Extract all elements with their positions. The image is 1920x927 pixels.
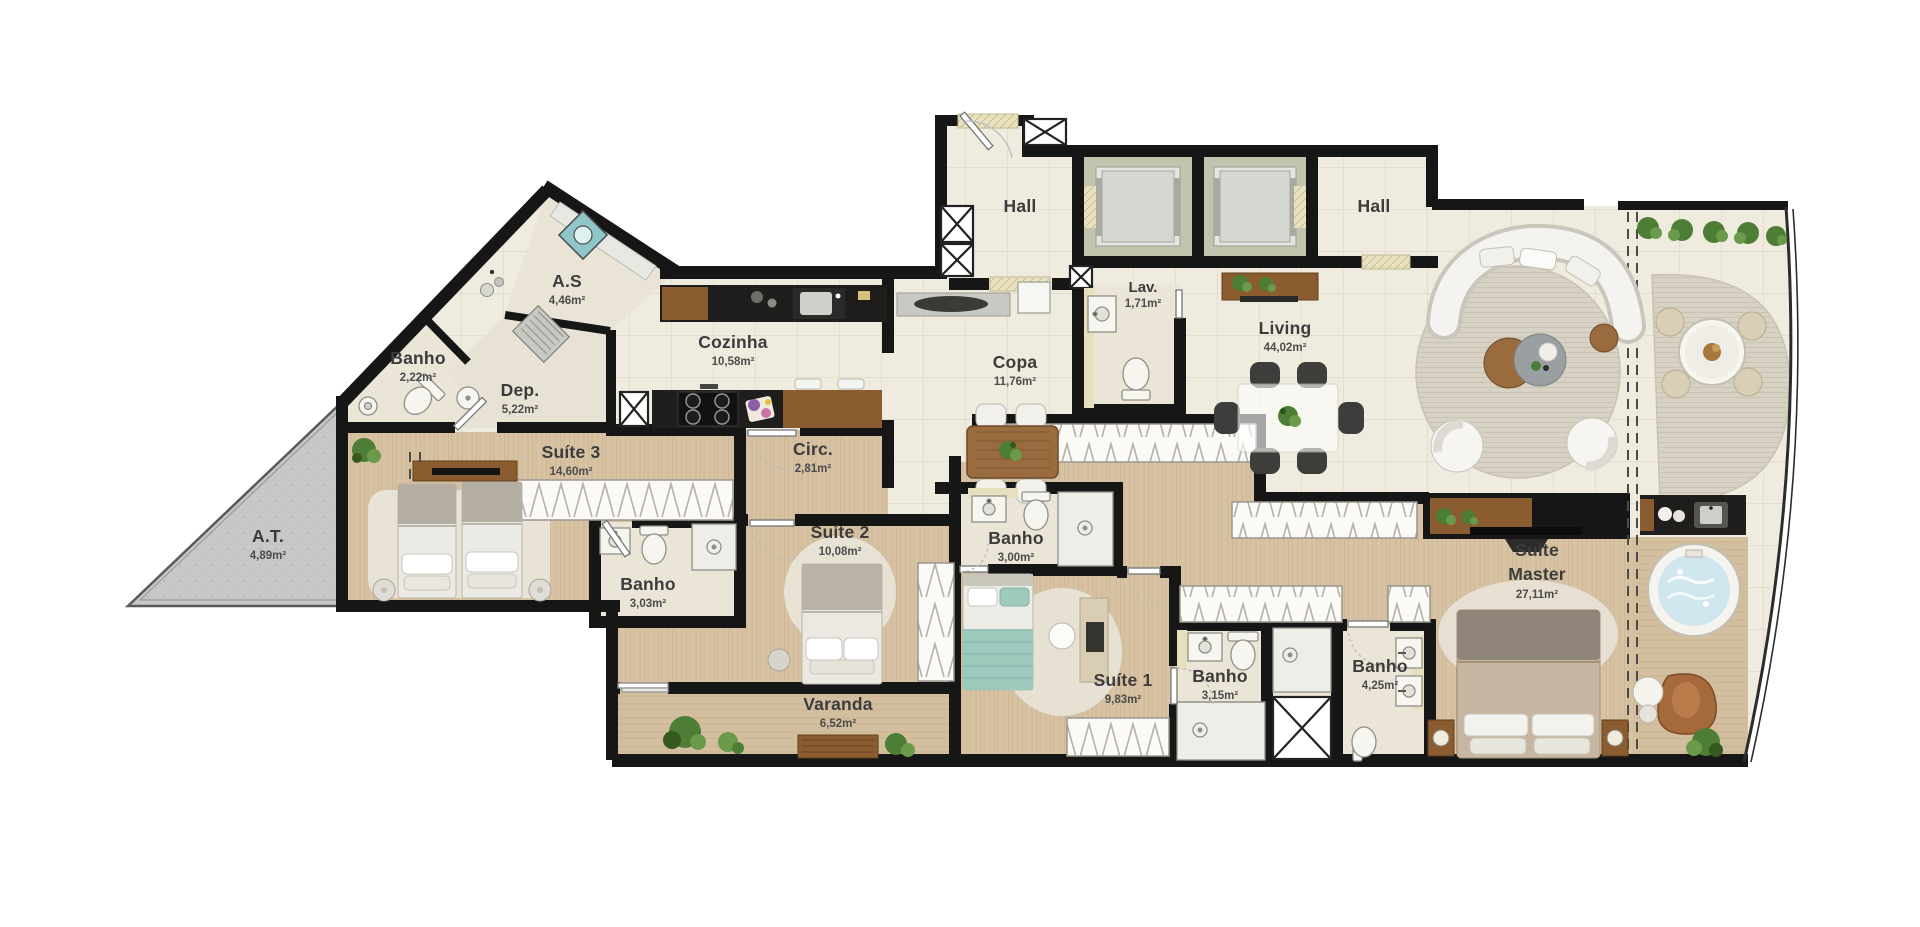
room-area-suite-master: 27,11m² bbox=[1516, 589, 1558, 601]
room-area-suite-2: 10,08m² bbox=[819, 546, 862, 558]
kitchen-cabinet-wood bbox=[662, 287, 708, 320]
floor-plan-drawing: A.T. 4,89m² Banho 2,22m² Dep. 5,22m² A.S… bbox=[0, 0, 1920, 927]
toilet-icon bbox=[1122, 358, 1150, 400]
tank-sink-icon bbox=[481, 284, 494, 297]
room-label-suite-1: Suíte 1 bbox=[1094, 670, 1153, 690]
shaft-box-icon bbox=[1273, 697, 1331, 759]
shaft-box-icon bbox=[941, 206, 973, 242]
armchair-icon bbox=[1431, 420, 1483, 472]
room-area-living: 44,02m² bbox=[1264, 342, 1307, 354]
toilet-icon bbox=[640, 526, 668, 564]
room-label-lav: Lav. bbox=[1129, 279, 1158, 296]
terrace-chair-icon bbox=[1738, 312, 1766, 340]
room-area-banho-suite-2: 3,00m² bbox=[998, 552, 1035, 564]
room-label-suite-3: Suíte 3 bbox=[542, 442, 601, 462]
terrace-counter bbox=[1640, 495, 1746, 535]
room-label-suite-2: Suíte 2 bbox=[811, 522, 870, 542]
tv-icon bbox=[1470, 527, 1582, 535]
copa-buffet-tray-icon bbox=[914, 296, 988, 312]
shower-icon bbox=[1273, 628, 1331, 692]
room-label-cozinha: Cozinha bbox=[698, 332, 768, 352]
room-area-as: 4,46m² bbox=[549, 295, 586, 307]
room-area-dep: 5,22m² bbox=[502, 404, 539, 416]
armchair-icon bbox=[1567, 418, 1617, 468]
kitchen-sink-icon bbox=[800, 292, 832, 315]
floor-plan-canvas: A.T. 4,89m² Banho 2,22m² Dep. 5,22m² A.S… bbox=[0, 0, 1920, 927]
shaft-box-icon bbox=[620, 392, 648, 426]
room-label-suite-master-line2: Master bbox=[1508, 564, 1566, 584]
room-label-hall-right: Hall bbox=[1358, 196, 1391, 216]
room-label-banho-master: Banho bbox=[1352, 656, 1407, 676]
twin-bed-icon bbox=[398, 484, 456, 598]
terrace-chair-icon bbox=[1656, 308, 1684, 336]
room-label-circ: Circ. bbox=[793, 439, 833, 459]
single-bed-icon bbox=[963, 574, 1033, 690]
room-label-banho-suite-1: Banho bbox=[1192, 666, 1247, 686]
room-area-banho-social: 2,22m² bbox=[400, 372, 437, 384]
master-closet-small bbox=[1388, 586, 1430, 622]
room-label-banho-social: Banho bbox=[390, 348, 445, 368]
coffee-table-gray-icon bbox=[1514, 334, 1566, 386]
suite-2-closet bbox=[918, 563, 954, 681]
nightstand-icon bbox=[1602, 720, 1628, 756]
room-label-varanda: Varanda bbox=[803, 694, 873, 714]
elevator-left bbox=[1084, 157, 1192, 256]
side-table-icon bbox=[1590, 324, 1618, 352]
twin-bed-icon bbox=[462, 482, 522, 598]
suite-3-closet bbox=[500, 480, 733, 520]
toilet-icon bbox=[1022, 492, 1050, 530]
room-label-copa: Copa bbox=[993, 352, 1038, 372]
jacuzzi-icon bbox=[1648, 544, 1740, 636]
master-closet-north bbox=[1232, 502, 1417, 538]
elevator-right bbox=[1204, 157, 1306, 256]
room-label-dep: Dep. bbox=[501, 380, 540, 400]
double-bed-icon bbox=[1457, 610, 1600, 758]
side-table-icon bbox=[1633, 677, 1663, 707]
lounge-chair-icon bbox=[1658, 674, 1716, 734]
room-label-at: A.T. bbox=[252, 526, 284, 546]
room-area-at: 4,89m² bbox=[250, 550, 287, 562]
room-area-banho-suite-3: 3,03m² bbox=[630, 598, 667, 610]
tv-icon bbox=[432, 468, 500, 475]
room-label-suite-master-line1: Suíte bbox=[1515, 540, 1559, 560]
shaft-box-icon bbox=[941, 244, 973, 276]
kitchen-cabinet-wood-2 bbox=[783, 390, 882, 428]
room-label-banho-suite-3: Banho bbox=[620, 574, 675, 594]
room-label-as: A.S bbox=[552, 271, 582, 291]
room-label-living: Living bbox=[1259, 318, 1312, 338]
desk-chair-icon bbox=[1049, 623, 1075, 649]
room-area-lav: 1,71m² bbox=[1125, 298, 1162, 310]
shower-icon bbox=[1177, 702, 1265, 760]
master-closet-south bbox=[1180, 586, 1342, 622]
room-area-suite-3: 14,60m² bbox=[550, 466, 593, 478]
room-label-banho-suite-2: Banho bbox=[988, 528, 1043, 548]
suite-1-closet bbox=[1067, 718, 1169, 756]
copa-cabinet bbox=[1018, 282, 1050, 313]
nightstand-icon bbox=[1428, 720, 1454, 756]
room-area-banho-master: 4,25m² bbox=[1362, 680, 1399, 692]
shaft-box-icon bbox=[1070, 266, 1092, 288]
pouf-icon bbox=[768, 649, 790, 671]
room-area-varanda: 6,52m² bbox=[820, 718, 857, 730]
terrace-chair-icon bbox=[1662, 370, 1690, 398]
hall-right-door-mat bbox=[1362, 255, 1410, 269]
technical-area-floor bbox=[128, 400, 344, 606]
shaft-box-icon bbox=[1024, 119, 1066, 145]
room-label-hall-left: Hall bbox=[1004, 196, 1037, 216]
room-area-circ: 2,81m² bbox=[795, 463, 832, 475]
room-area-copa: 11,76m² bbox=[994, 376, 1036, 388]
double-bed-icon bbox=[802, 564, 882, 684]
room-area-cozinha: 10,58m² bbox=[712, 356, 755, 368]
room-area-banho-suite-1: 3,15m² bbox=[1202, 690, 1239, 702]
room-area-suite-1: 9,83m² bbox=[1105, 694, 1142, 706]
